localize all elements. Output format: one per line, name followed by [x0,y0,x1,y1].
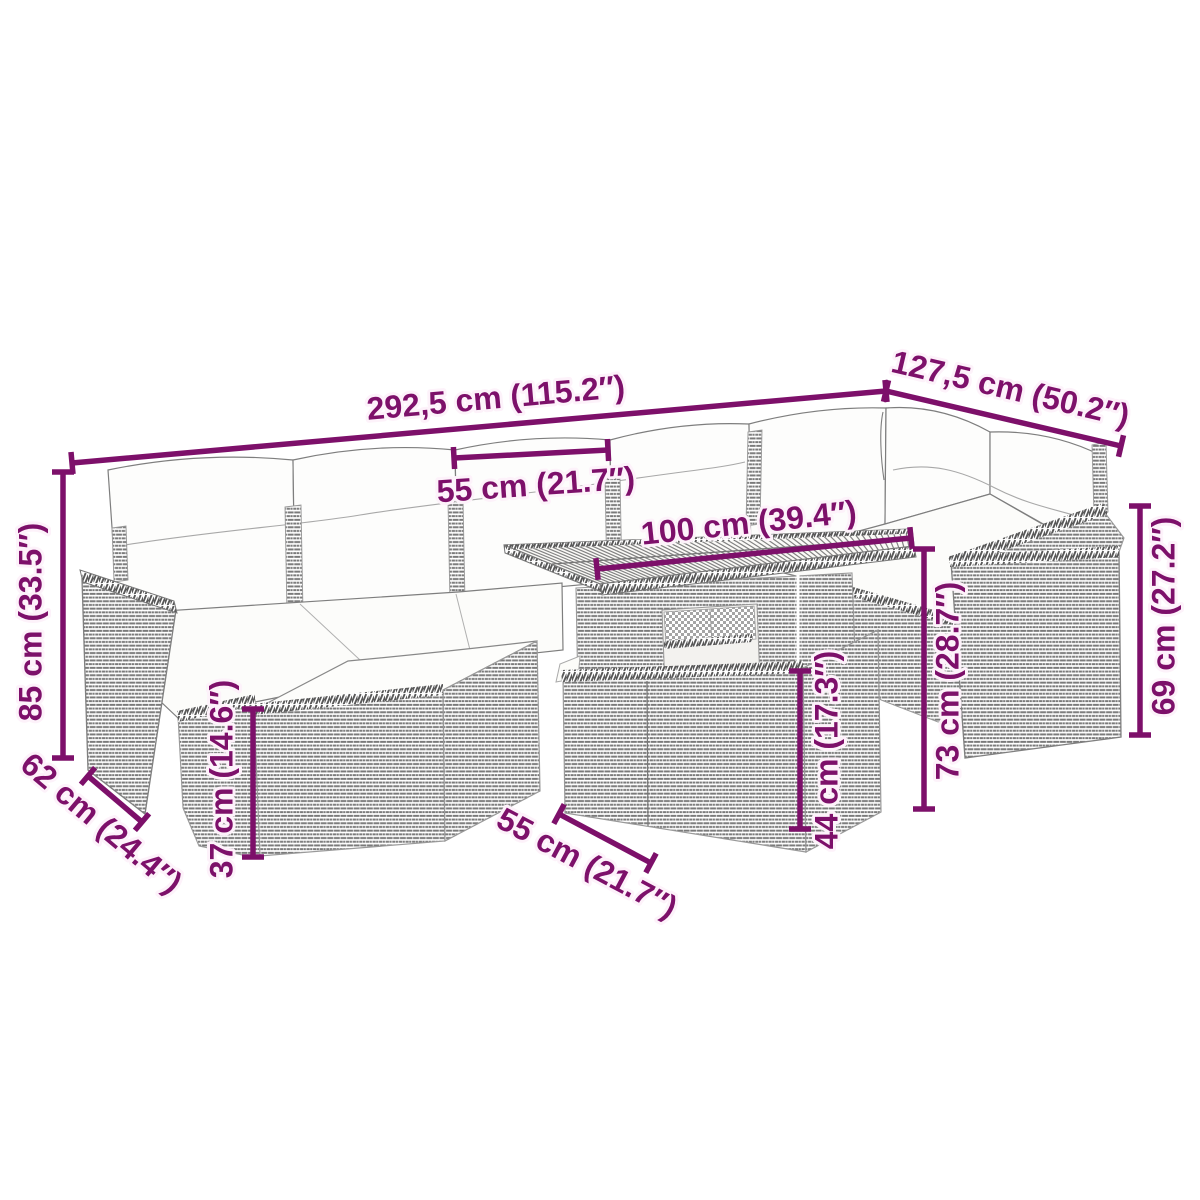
svg-text:73 cm (28.7″): 73 cm (28.7″) [929,582,965,781]
svg-text:37 cm (14.6″): 37 cm (14.6″) [203,680,239,879]
svg-text:69 cm (27.2″): 69 cm (27.2″) [1145,517,1181,716]
svg-text:44 cm (17.3″): 44 cm (17.3″) [808,651,844,850]
svg-text:85 cm (33.5″): 85 cm (33.5″) [12,523,48,722]
